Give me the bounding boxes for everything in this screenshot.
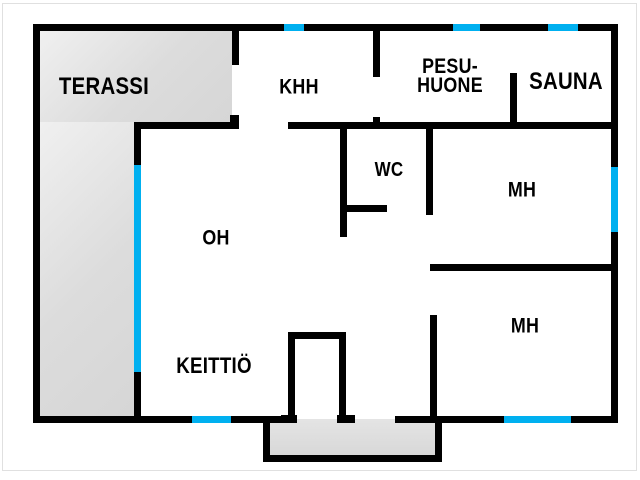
window-top-khh	[284, 24, 304, 31]
wall-wc-right	[426, 129, 433, 215]
wall-terrace-khh-divider	[232, 31, 239, 65]
wall-hall-mh-bottom	[430, 315, 437, 423]
wall-vestibule-top	[288, 332, 346, 339]
window-top-sauna	[548, 24, 578, 31]
room-label-keittio: KEITTIÖ	[176, 355, 252, 377]
room-label-terassi: TERASSI	[59, 75, 149, 99]
wall-oh-terrace-upper	[134, 129, 141, 165]
wall-terrace-divider-stub	[230, 115, 239, 122]
outer-wall-bottom-4	[571, 416, 618, 423]
outer-wall-bottom-2	[231, 416, 288, 423]
room-label-wc: WC	[375, 160, 404, 180]
outer-wall-bottom-1	[33, 416, 192, 423]
wall-wc-left	[340, 129, 347, 237]
floor-plan: TERASSI KHH PESU- HUONE SAUNA WC MH OH M…	[0, 0, 640, 480]
room-label-khh: KHH	[279, 77, 318, 98]
wall-khh-pesuhuone	[373, 31, 380, 77]
entrance-porch-floor	[270, 419, 435, 455]
wall-vestibule-foot-left	[281, 415, 297, 423]
room-label-oh: OH	[202, 228, 229, 249]
window-top-pesuhuone	[453, 24, 480, 31]
room-label-sauna: SAUNA	[529, 70, 603, 94]
outer-wall-top	[33, 24, 618, 31]
wall-middle-band	[288, 122, 618, 129]
wall-terrace-inner	[134, 122, 239, 129]
wall-khh-pesuhuone-stub	[373, 117, 380, 122]
wall-oh-terrace-lower	[134, 372, 141, 416]
terrace-floor-left	[40, 122, 134, 416]
wall-porch-bottom	[263, 455, 442, 462]
room-label-mh-bottom: MH	[511, 316, 539, 337]
window-oh-terrace	[134, 165, 141, 372]
wall-vestibule-left	[288, 332, 295, 422]
wall-pesuhuone-sauna	[510, 73, 517, 129]
room-label-pesuhuone: PESU- HUONE	[417, 57, 483, 95]
window-bottom-mh	[504, 416, 571, 423]
room-label-pesuhuone-line2: HUONE	[417, 74, 483, 97]
wall-vestibule-foot-right	[337, 415, 355, 423]
outer-wall-bottom-3	[395, 416, 504, 423]
room-label-mh-top: MH	[508, 180, 536, 201]
wall-mh-divider	[430, 264, 618, 271]
window-bottom-keittio	[192, 416, 231, 423]
window-right-mh	[611, 167, 618, 232]
wall-wc-bottom	[347, 205, 387, 212]
wall-vestibule-right	[339, 339, 346, 422]
outer-wall-left	[33, 24, 40, 423]
wall-porch-right	[435, 419, 442, 462]
